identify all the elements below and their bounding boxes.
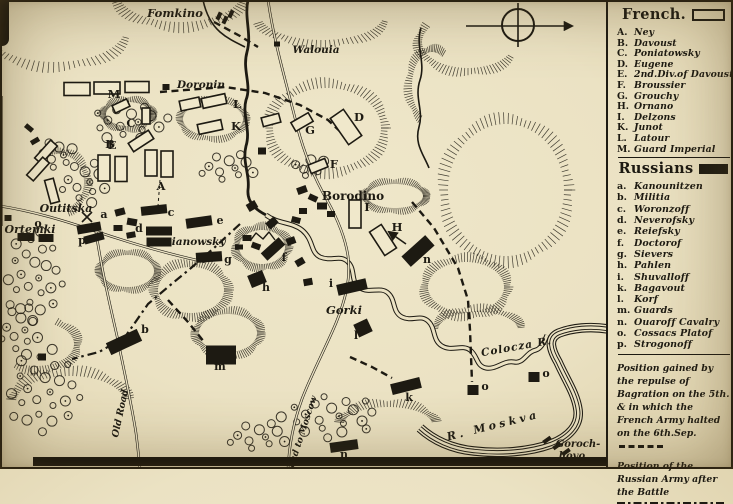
legend-key: C.: [617, 48, 630, 59]
legend-item-l: l.Korf: [617, 294, 730, 305]
french-unit-G: G: [261, 113, 315, 137]
russian-unit-f: f: [261, 237, 288, 264]
legend-key: B.: [617, 38, 630, 49]
legend-name: Ornano: [634, 101, 673, 112]
legend-name: Poniatowsky: [634, 48, 700, 59]
place-label-colocza-r-: Colocza R.: [480, 335, 553, 359]
svg-text:C: C: [126, 116, 135, 130]
russian-unit-n: n: [401, 235, 434, 267]
svg-text:l: l: [354, 329, 358, 342]
legend-item-G: G.Grouchy: [617, 91, 730, 102]
svg-text:p: p: [78, 234, 86, 247]
legend-key: G.: [617, 91, 630, 102]
legend-name: Shuvalloff: [634, 272, 689, 283]
legend-name: Bagavout: [634, 283, 685, 294]
french-unit-K: K: [197, 119, 242, 134]
russian-unit-c: c: [141, 204, 175, 219]
legend-name: Reiefsky: [634, 226, 680, 237]
svg-text:e: e: [217, 214, 224, 227]
legend-key: l.: [617, 294, 630, 305]
legend-key: c.: [617, 204, 630, 215]
french-unit-D: D: [330, 109, 364, 144]
legend-key: h.: [617, 260, 630, 271]
svg-text:m: m: [214, 360, 226, 373]
legend-name: Junot: [634, 122, 663, 133]
position-lines-group: [72, 22, 472, 382]
legend-name: Davoust: [634, 38, 677, 49]
legend-name: Kanounitzen: [634, 181, 703, 192]
legend-item-B: B.Davoust: [617, 38, 730, 49]
svg-text:a: a: [100, 208, 107, 221]
place-label-ortemki: Ortemki: [5, 223, 56, 236]
legend-item-C: C.Poniatowsky: [617, 48, 730, 59]
svg-text:A: A: [156, 179, 167, 193]
legend-key: D.: [617, 59, 630, 70]
place-label-outitska: Outitska: [40, 202, 93, 215]
legend-name: 2nd.Div.of Davoust: [634, 69, 733, 80]
russian-unit-e: e: [185, 214, 223, 229]
svg-text:o: o: [542, 367, 549, 380]
russian-unit-m: m: [206, 346, 236, 374]
russian-unit-o: o: [468, 380, 489, 395]
note-french-halt-position: Position gained by the repulse of Bagrat…: [617, 362, 731, 453]
svg-text:n: n: [423, 253, 431, 266]
legend-name: Latour: [634, 133, 669, 144]
legend-item-d: d.Neverofsky: [617, 215, 730, 226]
legend-item-a: a.Kanounitzen: [617, 181, 730, 192]
place-label-fomkino: Fomkino: [146, 6, 203, 20]
legend-key: n.: [617, 317, 630, 328]
russian-unit-b: b: [106, 323, 149, 355]
svg-text:K: K: [231, 119, 242, 133]
french-legend-header: French.: [617, 6, 730, 23]
legend-item-L: L.Latour: [617, 133, 730, 144]
legend-key: L.: [617, 133, 630, 144]
place-label-old-road: Old Road: [110, 388, 131, 438]
legend-key: M.: [617, 144, 630, 155]
russian-unit-symbol: [699, 164, 728, 174]
legend-key: m.: [617, 305, 630, 316]
svg-text:E: E: [108, 138, 117, 152]
svg-text:F: F: [330, 157, 339, 171]
legend-key: f.: [617, 238, 630, 249]
russian-legend-header: Russians: [617, 160, 730, 177]
legend-item-c: c.Woronzoff: [617, 204, 730, 215]
legend-name: Broussier: [634, 80, 685, 91]
dashed-line-symbol: [619, 445, 665, 448]
russian-unit-p: p: [78, 232, 105, 247]
scan-bottom-bar: [33, 457, 607, 466]
legend-item-k: k.Bagavout: [617, 283, 730, 294]
place-label-semianowsky: Semianowsky: [146, 236, 226, 248]
french-unit-symbol: [692, 9, 725, 21]
legend-key: A.: [617, 27, 630, 38]
svg-text:c: c: [168, 206, 175, 219]
legend-name: Cossacs Platof: [634, 328, 712, 339]
svg-text:d: d: [135, 222, 143, 235]
french-unit-group: [27, 140, 60, 204]
legend-key: b.: [617, 192, 630, 203]
legend-name: Militia: [634, 192, 670, 203]
french-unit-I: I: [349, 200, 370, 228]
legend-item-A: A.Ney: [617, 27, 730, 38]
legend-name: Grouchy: [634, 91, 678, 102]
legend-name: Guards: [634, 305, 673, 316]
legend-item-K: K.Junot: [617, 122, 730, 133]
french-unit-E: E: [108, 130, 154, 152]
legend-item-e: e.Reiefsky: [617, 226, 730, 237]
svg-text:o: o: [481, 380, 488, 393]
svg-text:M: M: [108, 87, 121, 101]
french-legend-title: French.: [622, 6, 686, 23]
legend-name: Ouaroff Cavalry: [634, 317, 719, 328]
svg-text:h: h: [262, 281, 270, 294]
legend-name: Neverofsky: [634, 215, 694, 226]
french-legend-list: A.NeyB.DavoustC.PoniatowskyD.EugeneE.2nd…: [617, 27, 730, 154]
legend-panel: French. A.NeyB.DavoustC.PoniatowskyD.Eug…: [606, 0, 733, 469]
svg-text:G: G: [305, 123, 315, 137]
legend-name: Woronzoff: [634, 204, 689, 215]
svg-text:i: i: [329, 277, 333, 290]
legend-key: a.: [617, 181, 630, 192]
legend-key: e.: [617, 226, 630, 237]
legend-item-I: I.Delzons: [617, 112, 730, 123]
legend-item-h: h.Pahlen: [617, 260, 730, 271]
scan-edge-smudge: [0, 96, 3, 226]
legend-name: Delzons: [634, 112, 676, 123]
french-unit-F: F: [308, 157, 339, 174]
legend-key: o.: [617, 328, 630, 339]
svg-text:g: g: [224, 253, 232, 266]
legend-name: Guard Imperial: [634, 144, 715, 155]
place-label-r-moskva: R. Moskva: [444, 408, 540, 444]
scanned-map-page: ABCDEFGHIKLMabcdefghiklmnnooopFomkinoWal…: [0, 0, 733, 469]
legend-key: I.: [617, 112, 630, 123]
legend-item-b: b.Militia: [617, 192, 730, 203]
legend-divider-rule: [618, 157, 730, 158]
legend-item-E: E.2nd.Div.of Davoust: [617, 69, 730, 80]
place-label-doronin: Doronin: [176, 79, 225, 91]
svg-text:b: b: [141, 323, 149, 336]
legend-item-m: m.Guards: [617, 305, 730, 316]
legend-key: d.: [617, 215, 630, 226]
french-unit-A: A: [145, 150, 173, 193]
place-label-walouia: Walouia: [292, 44, 339, 56]
place-label-goroch-: Goroch-: [556, 439, 601, 450]
scan-corner-smudge: [0, 0, 9, 46]
legend-name: Korf: [634, 294, 658, 305]
legend-item-D: D.Eugene: [617, 59, 730, 70]
legend-item-n: n.Ouaroff Cavalry: [617, 317, 730, 328]
legend-item-H: H.Ornano: [617, 101, 730, 112]
legend-item-F: F.Broussier: [617, 80, 730, 91]
russian-unit-h: h: [247, 270, 270, 294]
legend-key: g.: [617, 249, 630, 260]
svg-text:D: D: [354, 110, 364, 124]
svg-text:L: L: [233, 97, 241, 111]
place-label-gorki: Gorki: [326, 303, 362, 317]
notes-divider-rule: [618, 354, 730, 355]
russian-legend-list: a.Kanounitzenb.Militiac.Woronzoffd.Never…: [617, 181, 730, 350]
legend-key: H.: [617, 101, 630, 112]
place-label-borodino: Borodino: [322, 189, 384, 203]
legend-name: Sievers: [634, 249, 673, 260]
legend-key: k.: [617, 283, 630, 294]
legend-key: i.: [617, 272, 630, 283]
legend-item-o: o.Cossacs Platof: [617, 328, 730, 339]
svg-text:k: k: [405, 391, 413, 404]
legend-item-M: M.Guard Imperial: [617, 144, 730, 155]
legend-name: Eugene: [634, 59, 674, 70]
legend-item-i: i.Shuvalloff: [617, 272, 730, 283]
legend-key: E.: [617, 69, 630, 80]
note-russian-position-after-battle: Position of the Russian Army after the B…: [617, 460, 731, 504]
russian-unit-l: l: [353, 318, 373, 342]
legend-item-p: p.Strogonoff: [617, 339, 730, 350]
legend-key: F.: [617, 80, 630, 91]
battle-map: ABCDEFGHIKLMabcdefghiklmnnooopFomkinoWal…: [0, 0, 608, 469]
legend-name: Doctorof: [634, 238, 681, 249]
legend-name: Ney: [634, 27, 654, 38]
legend-name: Pahlen: [634, 260, 671, 271]
russian-unit-o: o: [529, 367, 550, 382]
legend-key: p.: [617, 339, 630, 350]
svg-text:H: H: [392, 220, 403, 234]
legend-key: K.: [617, 122, 630, 133]
russian-unit-k: k: [390, 377, 422, 404]
legend-item-g: g.Sievers: [617, 249, 730, 260]
legend-item-f: f.Doctorof: [617, 238, 730, 249]
legend-name: Strogonoff: [634, 339, 692, 350]
compass-rose: [466, 3, 572, 47]
russians-legend-title: Russians: [619, 160, 694, 177]
